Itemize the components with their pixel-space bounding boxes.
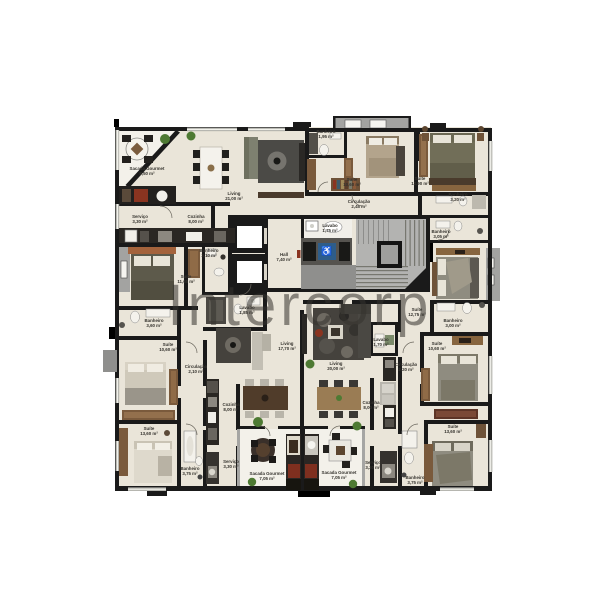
svg-text:20,00 m²: 20,00 m²: [327, 366, 345, 371]
svg-text:3,30 m²: 3,30 m²: [132, 219, 148, 224]
svg-text:2,10 m²: 2,10 m²: [188, 369, 204, 374]
svg-text:13,60 m²: 13,60 m²: [140, 431, 158, 436]
svg-text:2,20 m²: 2,20 m²: [398, 367, 414, 372]
svg-text:Intercorp: Intercorp: [168, 273, 433, 338]
svg-text:3,75 m²: 3,75 m²: [407, 480, 423, 485]
svg-text:7,05 m²: 7,05 m²: [259, 476, 275, 481]
svg-text:3,30 m²: 3,30 m²: [365, 465, 381, 470]
svg-text:3,05 m²: 3,05 m²: [433, 234, 449, 239]
svg-text:7,05 m²: 7,05 m²: [331, 475, 347, 480]
svg-text:12,75 m²: 12,75 m²: [408, 312, 426, 317]
svg-text:10,60 m²: 10,60 m²: [343, 182, 361, 187]
svg-text:13,60 m²: 13,60 m²: [444, 429, 462, 434]
svg-text:8,00 m²: 8,00 m²: [363, 405, 379, 410]
svg-text:12,90 m²: 12,90 m²: [411, 181, 429, 186]
svg-text:10,60 m²: 10,60 m²: [428, 346, 446, 351]
svg-text:3,20 m²: 3,20 m²: [450, 197, 466, 202]
svg-text:10,60 m²: 10,60 m²: [159, 347, 177, 352]
svg-text:3,10 m²: 3,10 m²: [201, 253, 217, 258]
svg-text:3,00 m²: 3,00 m²: [445, 323, 461, 328]
svg-text:8,00 m²: 8,00 m²: [188, 219, 204, 224]
svg-text:1,85 m²: 1,85 m²: [239, 310, 255, 315]
svg-text:2,45 m²: 2,45 m²: [351, 204, 367, 209]
svg-text:3,60 m²: 3,60 m²: [146, 323, 162, 328]
svg-text:21,00 m²: 21,00 m²: [225, 196, 243, 201]
svg-text:1,70 m²: 1,70 m²: [373, 342, 389, 347]
svg-text:8,50 m²: 8,50 m²: [139, 171, 155, 176]
svg-text:1,75 m²: 1,75 m²: [322, 228, 338, 233]
svg-text:3,30 m²: 3,30 m²: [223, 464, 239, 469]
svg-text:♿: ♿: [321, 245, 332, 256]
svg-text:8,00 m²: 8,00 m²: [223, 407, 239, 412]
svg-text:11,65 m²: 11,65 m²: [177, 279, 195, 284]
svg-text:17,70 m²: 17,70 m²: [278, 346, 296, 351]
svg-text:7,40 m²: 7,40 m²: [276, 257, 292, 262]
svg-text:3,75 m²: 3,75 m²: [182, 471, 198, 476]
svg-text:1,95 m²: 1,95 m²: [318, 134, 334, 139]
